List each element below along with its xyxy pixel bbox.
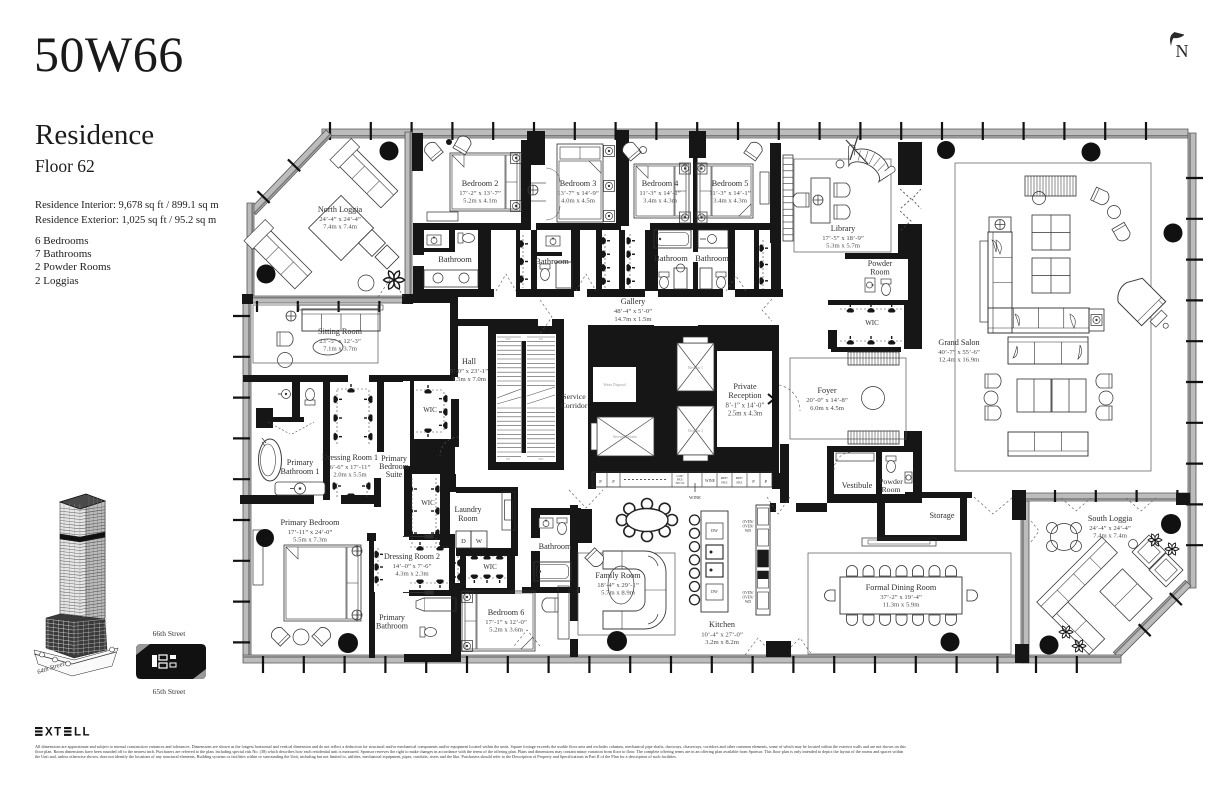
svg-text:Vestibule: Vestibule xyxy=(842,481,873,490)
svg-text:WIC: WIC xyxy=(865,319,879,327)
svg-text:WIC: WIC xyxy=(423,406,437,414)
svg-text:Gallery: Gallery xyxy=(621,297,646,306)
svg-text:P: P xyxy=(612,479,615,484)
svg-text:5.5m x 7.3m: 5.5m x 7.3m xyxy=(293,537,328,544)
svg-text:UP: UP xyxy=(539,337,543,341)
svg-text:7.1m x 3.7m: 7.1m x 3.7m xyxy=(323,346,358,353)
svg-text:17’-11” x 24’-0”: 17’-11” x 24’-0” xyxy=(288,529,333,536)
svg-text:Dressing Room 1: Dressing Room 1 xyxy=(322,453,378,462)
svg-text:Reception: Reception xyxy=(728,391,761,400)
svg-text:3.4m x 4.3m: 3.4m x 4.3m xyxy=(643,198,678,205)
svg-text:WD: WD xyxy=(745,529,751,533)
svg-text:DN: DN xyxy=(539,457,544,461)
svg-text:Bathroom: Bathroom xyxy=(539,542,572,551)
svg-text:WD: WD xyxy=(745,600,751,604)
svg-text:3.4m x 4.3m: 3.4m x 4.3m xyxy=(713,198,748,205)
svg-text:6.0m x 4.5m: 6.0m x 4.5m xyxy=(810,405,845,412)
svg-text:DN: DN xyxy=(506,337,511,341)
svg-text:3.2m x 8.2m: 3.2m x 8.2m xyxy=(705,639,740,646)
svg-text:Grand Salon: Grand Salon xyxy=(938,338,979,347)
svg-text:Primary Bedroom: Primary Bedroom xyxy=(281,518,341,527)
svg-text:DW: DW xyxy=(711,528,718,533)
svg-text:Hall: Hall xyxy=(462,357,477,366)
svg-text:20’-0” x 14’-8”: 20’-0” x 14’-8” xyxy=(806,397,848,404)
svg-text:5’-0” x 23’-1”: 5’-0” x 23’-1” xyxy=(450,368,488,375)
svg-text:5.7m x 8.9m: 5.7m x 8.9m xyxy=(601,590,636,597)
svg-text:5.3m x 5.7m: 5.3m x 5.7m xyxy=(826,243,861,250)
svg-text:Bedroom 5: Bedroom 5 xyxy=(712,179,749,188)
svg-text:OVEN/: OVEN/ xyxy=(743,525,754,529)
svg-text:Room: Room xyxy=(458,514,478,523)
svg-text:Bathroom: Bathroom xyxy=(654,254,688,263)
svg-text:18’-4” x 29’-1”: 18’-4” x 29’-1” xyxy=(597,582,639,589)
svg-text:5.2m x 3.6m: 5.2m x 3.6m xyxy=(489,627,524,634)
svg-text:4.3m x 2.3m: 4.3m x 2.3m xyxy=(395,571,429,578)
svg-text:REF/: REF/ xyxy=(721,476,728,480)
svg-text:OVEN/: OVEN/ xyxy=(743,520,754,524)
svg-text:UP: UP xyxy=(506,457,510,461)
svg-text:Bathroom 1: Bathroom 1 xyxy=(281,467,320,476)
svg-text:6’-6” x 17’-11”: 6’-6” x 17’-11” xyxy=(330,464,371,471)
svg-text:Foyer: Foyer xyxy=(817,386,836,395)
svg-text:Dressing Room 2: Dressing Room 2 xyxy=(384,552,440,561)
svg-text:Corridor: Corridor xyxy=(561,401,588,410)
svg-text:Kitchen: Kitchen xyxy=(709,620,735,629)
svg-text:17’-2” x 13’-7”: 17’-2” x 13’-7” xyxy=(459,190,501,197)
svg-text:2.0m x 5.5m: 2.0m x 5.5m xyxy=(333,472,367,479)
svg-text:Bedroom 6: Bedroom 6 xyxy=(488,608,525,617)
svg-text:11’-3” x 14’-1”: 11’-3” x 14’-1” xyxy=(639,190,680,197)
svg-text:8’-1” x 14’-0”: 8’-1” x 14’-0” xyxy=(726,403,765,410)
svg-text:P: P xyxy=(765,479,768,484)
svg-text:2.5m x 4.3m: 2.5m x 4.3m xyxy=(728,411,763,418)
svg-text:Bedroom 2: Bedroom 2 xyxy=(462,179,499,188)
svg-text:South Loggia: South Loggia xyxy=(1088,514,1133,523)
svg-text:Primary: Primary xyxy=(287,458,314,467)
svg-text:14.7m x 1.5m: 14.7m x 1.5m xyxy=(614,316,652,323)
svg-text:13’-7” x 14’-9”: 13’-7” x 14’-9” xyxy=(557,190,599,197)
svg-text:Library: Library xyxy=(831,224,856,233)
svg-text:17’-1” x 12’-0”: 17’-1” x 12’-0” xyxy=(485,619,527,626)
svg-text:66th Street: 66th Street xyxy=(153,629,187,638)
svg-text:WINE: WINE xyxy=(705,479,716,483)
svg-text:7.4m x 7.4m: 7.4m x 7.4m xyxy=(323,224,358,231)
svg-text:WIC: WIC xyxy=(421,499,435,507)
svg-text:FRZ: FRZ xyxy=(721,481,727,485)
svg-text:D: D xyxy=(461,538,466,545)
svg-text:XT: XT xyxy=(45,727,63,739)
svg-text:1.5m x 7.0m: 1.5m x 7.0m xyxy=(452,376,487,383)
svg-text:REF/: REF/ xyxy=(736,476,743,480)
svg-text:37’-2” x 19’-4”: 37’-2” x 19’-4” xyxy=(880,594,922,601)
svg-text:P: P xyxy=(599,479,602,484)
svg-text:11.3m x 5.9m: 11.3m x 5.9m xyxy=(883,602,921,609)
svg-text:48’-4” x 5’-0”: 48’-4” x 5’-0” xyxy=(614,308,652,315)
svg-text:FRZ: FRZ xyxy=(736,481,742,485)
svg-text:24’-4” x 24’-4”: 24’-4” x 24’-4” xyxy=(1089,525,1131,532)
svg-text:Service: Service xyxy=(562,392,586,401)
svg-text:LL: LL xyxy=(74,727,91,739)
svg-text:DW: DW xyxy=(711,589,718,594)
svg-text:12.4m x 16.9m: 12.4m x 16.9m xyxy=(939,357,980,364)
svg-text:Suite: Suite xyxy=(386,470,403,479)
svg-text:65th Street: 65th Street xyxy=(153,687,187,696)
svg-text:Bedroom 3: Bedroom 3 xyxy=(560,179,597,188)
svg-text:SPCW: SPCW xyxy=(676,481,685,485)
svg-text:OVEN/: OVEN/ xyxy=(743,596,754,600)
svg-text:Room: Room xyxy=(870,268,890,277)
svg-text:Formal Dining Room: Formal Dining Room xyxy=(866,583,937,592)
svg-text:Sitting Room: Sitting Room xyxy=(318,327,363,336)
svg-text:N: N xyxy=(1176,41,1189,61)
svg-text:Waste Disposal: Waste Disposal xyxy=(603,383,625,387)
svg-text:Service Elevator: Service Elevator xyxy=(613,435,638,439)
svg-text:Family Room: Family Room xyxy=(595,571,641,580)
svg-text:Bathroom: Bathroom xyxy=(695,254,729,263)
svg-text:Bedroom 4: Bedroom 4 xyxy=(642,179,679,188)
svg-text:W: W xyxy=(476,538,483,545)
svg-text:17’-5” x 18’-9”: 17’-5” x 18’-9” xyxy=(822,235,864,242)
svg-text:Elevator 2: Elevator 2 xyxy=(688,429,703,433)
svg-text:WIC: WIC xyxy=(483,563,497,571)
svg-text:24’-4” x 24’-4”: 24’-4” x 24’-4” xyxy=(319,216,361,223)
svg-text:Bathroom: Bathroom xyxy=(535,257,569,266)
svg-text:Laundry: Laundry xyxy=(454,505,481,514)
svg-text:11’-3” x 14’-1”: 11’-3” x 14’-1” xyxy=(709,190,750,197)
svg-text:WINE: WINE xyxy=(689,495,701,500)
svg-text:14’–0” x 7’-6”: 14’–0” x 7’-6” xyxy=(393,563,432,570)
svg-text:23’-5” x 12’-3”: 23’-5” x 12’-3” xyxy=(319,338,361,345)
svg-text:Elevator 1: Elevator 1 xyxy=(688,366,703,370)
svg-text:Bathroom: Bathroom xyxy=(376,622,409,631)
svg-text:5.2m x 4.1m: 5.2m x 4.1m xyxy=(463,198,498,205)
svg-text:OVEN/: OVEN/ xyxy=(743,591,754,595)
svg-text:10’-4” x 27’-0”: 10’-4” x 27’-0” xyxy=(701,632,743,639)
svg-text:P: P xyxy=(752,479,755,484)
svg-text:North Loggia: North Loggia xyxy=(318,205,363,214)
svg-text:4.0m x 4.5m: 4.0m x 4.5m xyxy=(561,198,596,205)
svg-text:Bathroom: Bathroom xyxy=(438,255,472,264)
svg-text:40’-7” x 55’-6”: 40’-7” x 55’-6” xyxy=(938,349,980,356)
svg-text:Room: Room xyxy=(881,485,900,494)
svg-text:Private: Private xyxy=(733,382,757,391)
svg-text:7.4m x 7.4m: 7.4m x 7.4m xyxy=(1093,533,1128,540)
svg-text:Storage: Storage xyxy=(929,511,954,520)
